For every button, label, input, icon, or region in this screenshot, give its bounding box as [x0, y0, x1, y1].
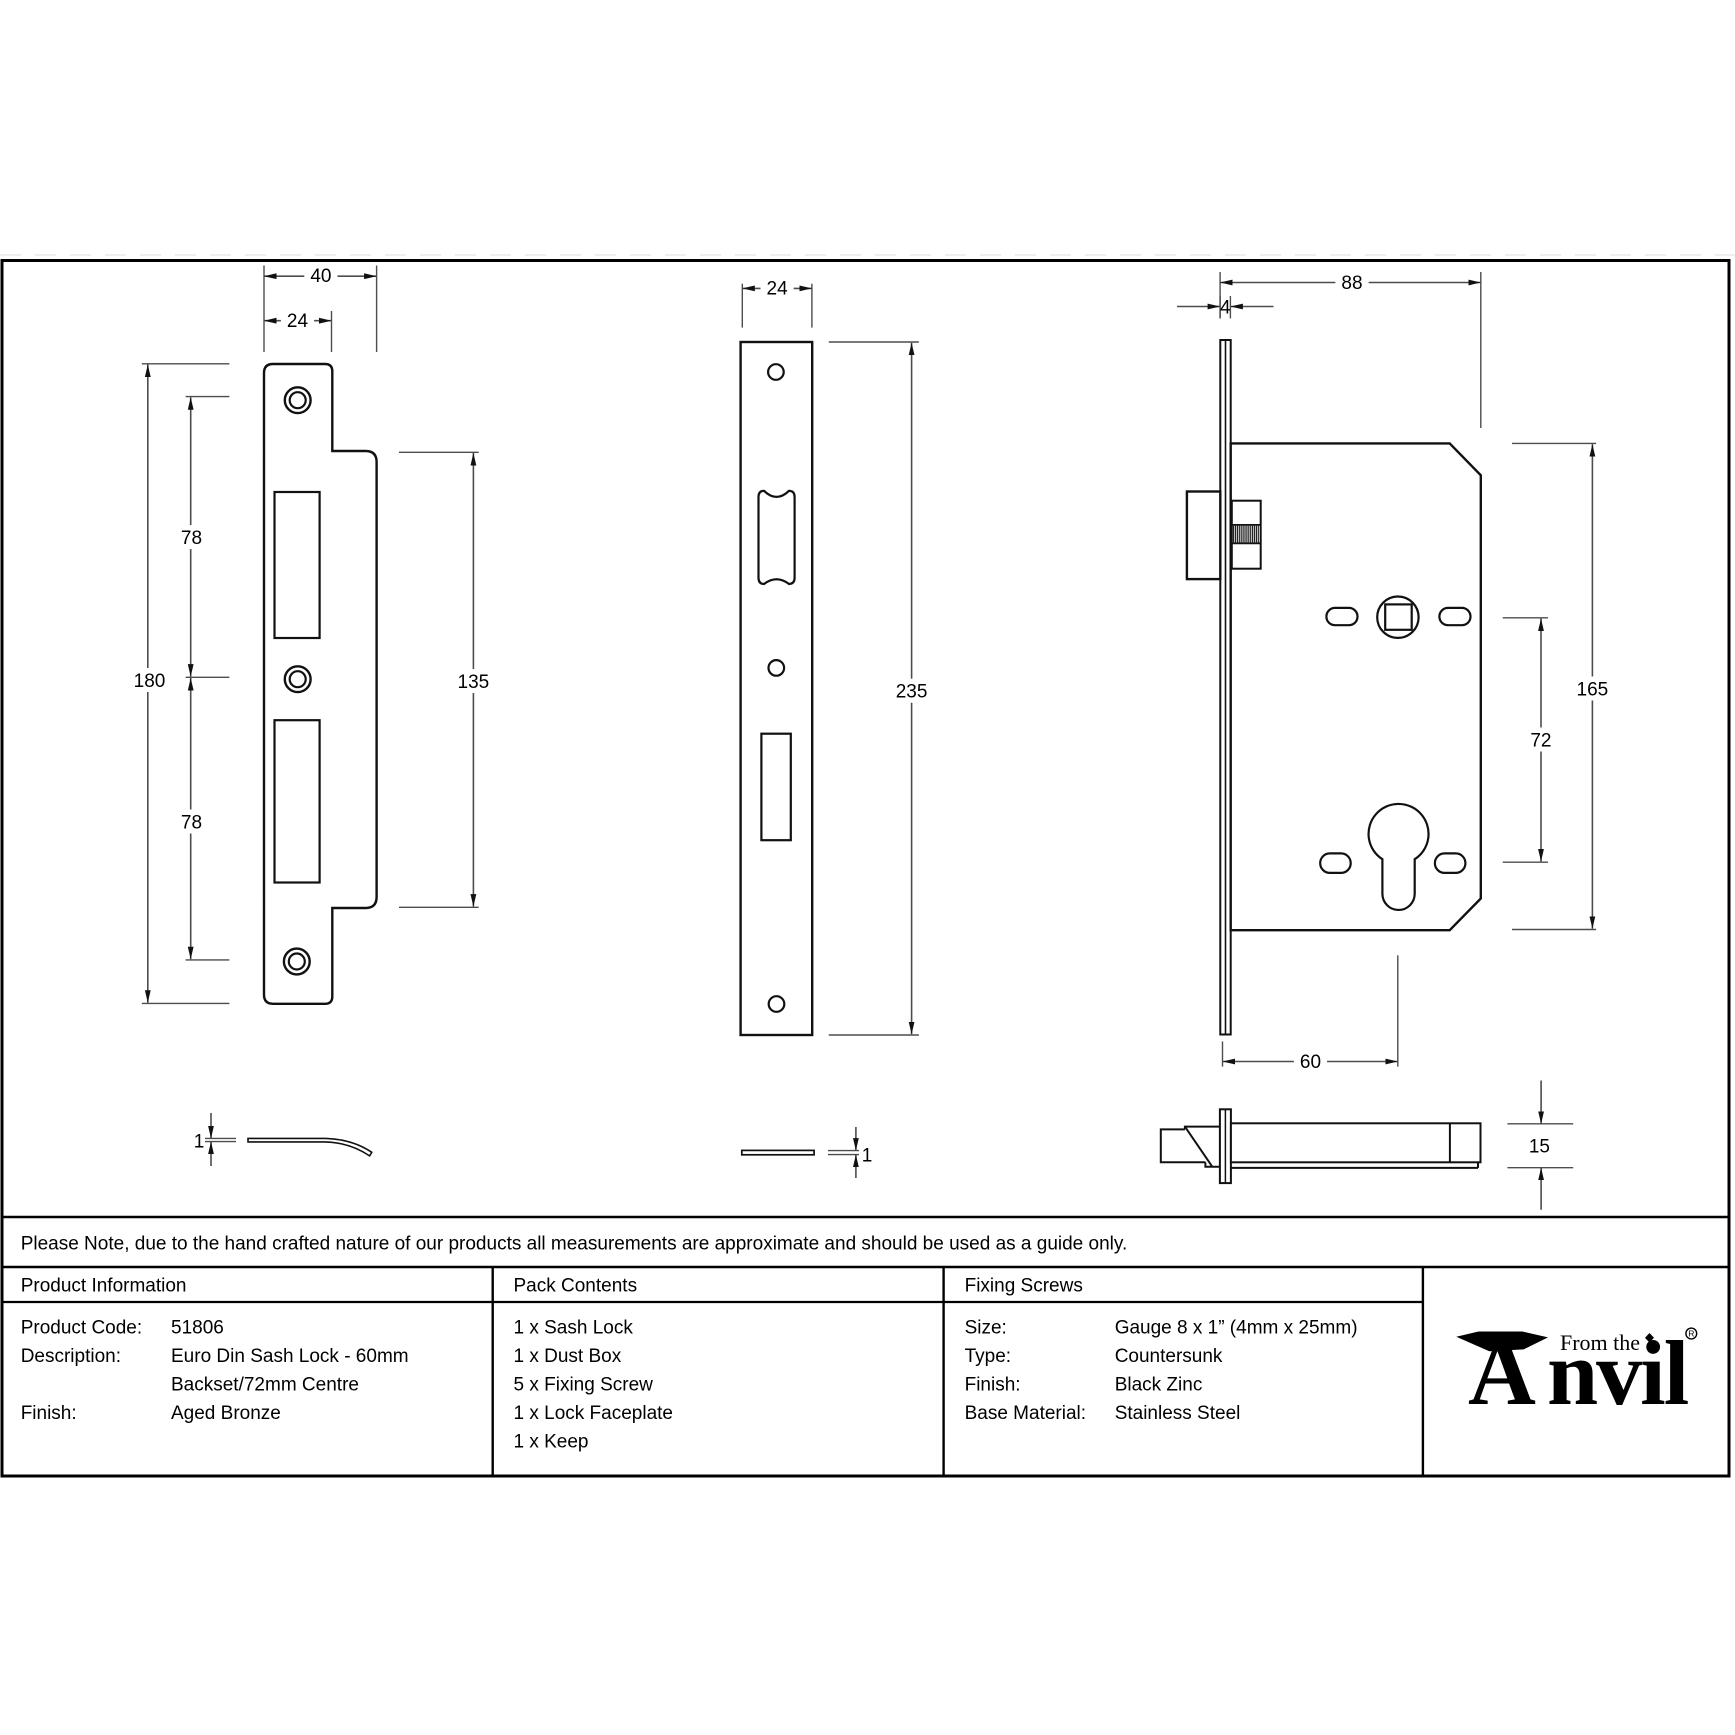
svg-text:Pack Contents: Pack Contents: [514, 1276, 638, 1297]
svg-text:Euro Din Sash Lock - 60mm: Euro Din Sash Lock - 60mm: [171, 1346, 409, 1367]
svg-text:165: 165: [1577, 679, 1609, 700]
svg-text:72: 72: [1530, 730, 1551, 751]
svg-text:24: 24: [287, 311, 309, 332]
svg-text:Size:: Size:: [965, 1318, 1007, 1339]
svg-text:Gauge 8 x 1” (4mm x 25mm): Gauge 8 x 1” (4mm x 25mm): [1115, 1318, 1358, 1339]
svg-text:1 x Dust Box: 1 x Dust Box: [514, 1346, 622, 1367]
svg-text:1 x Lock Faceplate: 1 x Lock Faceplate: [514, 1403, 673, 1424]
svg-text:Finish:: Finish:: [965, 1375, 1021, 1396]
svg-text:Description:: Description:: [21, 1346, 121, 1367]
svg-text:Base Material:: Base Material:: [965, 1403, 1086, 1424]
svg-text:Finish:: Finish:: [21, 1403, 77, 1424]
svg-text:nvil: nvil: [1547, 1322, 1688, 1424]
svg-text:1: 1: [194, 1132, 205, 1153]
svg-text:Backset/72mm Centre: Backset/72mm Centre: [171, 1375, 359, 1396]
svg-text:Stainless Steel: Stainless Steel: [1115, 1403, 1241, 1424]
svg-text:51806: 51806: [171, 1318, 224, 1339]
svg-text:Fixing Screws: Fixing Screws: [965, 1276, 1083, 1297]
svg-text:Countersunk: Countersunk: [1115, 1346, 1223, 1367]
svg-text:R: R: [1688, 1329, 1694, 1339]
svg-text:Black Zinc: Black Zinc: [1115, 1375, 1203, 1396]
svg-text:5 x Fixing Screw: 5 x Fixing Screw: [514, 1375, 654, 1396]
svg-text:235: 235: [896, 682, 928, 703]
svg-text:Aged Bronze: Aged Bronze: [171, 1403, 281, 1424]
svg-text:60: 60: [1300, 1052, 1321, 1073]
svg-text:180: 180: [134, 671, 166, 692]
svg-text:78: 78: [181, 812, 202, 833]
svg-text:4: 4: [1220, 297, 1231, 318]
svg-text:40: 40: [310, 266, 331, 287]
svg-text:Product Information: Product Information: [21, 1276, 187, 1297]
svg-text:78: 78: [181, 528, 202, 549]
svg-text:Please Note, due to the hand c: Please Note, due to the hand crafted nat…: [21, 1233, 1128, 1254]
svg-text:Type:: Type:: [965, 1346, 1011, 1367]
svg-text:1: 1: [862, 1146, 873, 1167]
svg-text:135: 135: [458, 672, 490, 693]
svg-text:Product Code:: Product Code:: [21, 1318, 142, 1339]
svg-text:1 x Sash Lock: 1 x Sash Lock: [514, 1318, 634, 1339]
svg-text:24: 24: [767, 279, 789, 300]
svg-text:88: 88: [1341, 273, 1362, 294]
svg-text:1 x Keep: 1 x Keep: [514, 1432, 589, 1453]
svg-text:15: 15: [1529, 1137, 1550, 1158]
